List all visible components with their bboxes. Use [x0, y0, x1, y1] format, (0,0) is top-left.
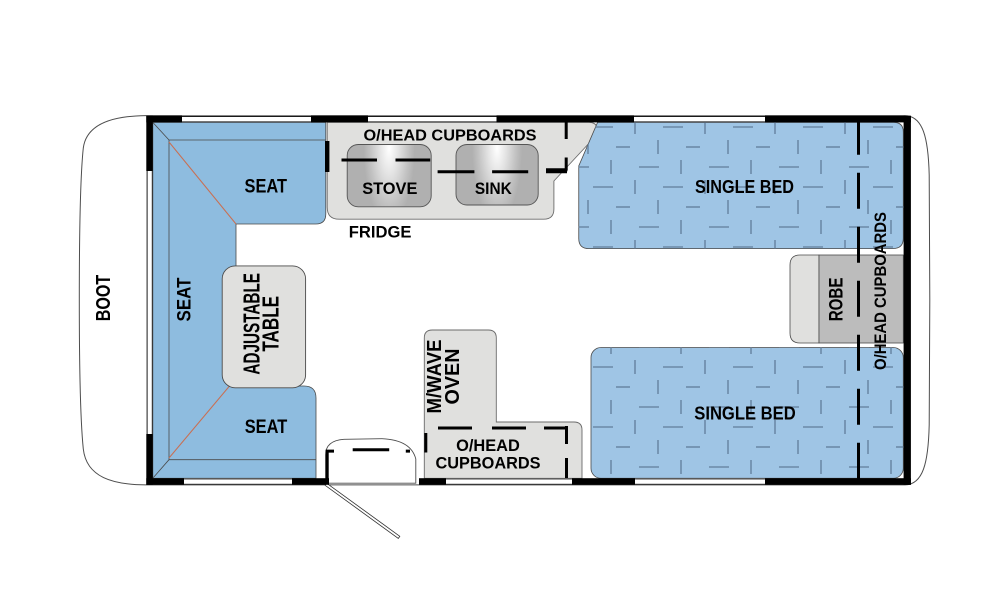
svg-text:FRIDGE: FRIDGE	[349, 223, 412, 242]
svg-text:STOVE: STOVE	[362, 180, 417, 198]
svg-text:SEAT: SEAT	[245, 176, 288, 197]
svg-text:O/HEAD CUPBOARDS: O/HEAD CUPBOARDS	[871, 212, 890, 370]
svg-text:SEAT: SEAT	[174, 277, 195, 321]
svg-text:CUPBOARDS: CUPBOARDS	[436, 455, 541, 473]
svg-text:OVEN: OVEN	[442, 349, 464, 405]
svg-text:O/HEAD: O/HEAD	[456, 437, 520, 455]
svg-text:ROBE: ROBE	[827, 278, 848, 322]
svg-text:SEAT: SEAT	[245, 417, 288, 438]
svg-text:BOOT: BOOT	[93, 275, 115, 322]
svg-text:TABLE: TABLE	[257, 296, 283, 352]
svg-text:SINK: SINK	[475, 180, 512, 198]
svg-text:O/HEAD CUPBOARDS: O/HEAD CUPBOARDS	[364, 128, 537, 145]
svg-text:SINGLE BED: SINGLE BED	[695, 177, 794, 197]
svg-text:SINGLE BED: SINGLE BED	[694, 403, 796, 423]
